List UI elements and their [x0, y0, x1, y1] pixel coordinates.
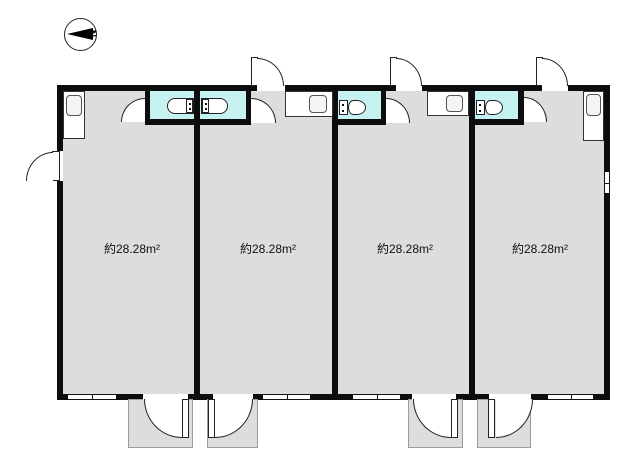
toilet-icon [485, 100, 503, 115]
kitchen-sink-icon [66, 95, 82, 116]
unit-area-label: 約28.28m² [360, 240, 450, 257]
bathroom-1-bottom-wall [145, 119, 200, 125]
bathroom-3-bottom-wall [332, 119, 386, 125]
unit-area-label: 約28.28m² [87, 240, 177, 257]
bathroom-2-bottom-wall [194, 119, 251, 125]
window [604, 172, 610, 193]
door-leaf [52, 151, 60, 181]
floor-plan: N [0, 0, 640, 469]
door-leaf [488, 399, 495, 438]
toilet-tank [476, 100, 485, 115]
kitchen-sink-icon [446, 95, 463, 112]
kitchen-sink-icon [586, 94, 601, 116]
bathroom-1-side-wall [145, 91, 150, 119]
window [353, 394, 400, 400]
door-swing-arc [396, 58, 422, 86]
window [548, 394, 593, 400]
bathroom-4-bottom-wall [469, 119, 524, 125]
window [263, 394, 310, 400]
north-label: N [86, 30, 97, 37]
door-leaf [451, 399, 458, 438]
unit-wall-1-2 [194, 85, 200, 400]
door-leaf [182, 399, 189, 438]
unit-area-label: 約28.28m² [223, 240, 313, 257]
door-leaf [208, 399, 215, 438]
door-swing-arc [542, 58, 568, 86]
door-swing-arc [257, 58, 284, 86]
toilet-icon [348, 100, 366, 115]
window [68, 394, 116, 400]
door-swing-arc [26, 152, 53, 181]
toilet-tank [339, 100, 348, 115]
kitchen-sink-icon [309, 95, 327, 113]
bathtub-panel [186, 99, 193, 113]
unit-wall-3-4 [469, 85, 475, 400]
unit-area-label: 約28.28m² [495, 240, 585, 257]
bathtub-panel [202, 99, 209, 113]
unit-wall-2-3 [332, 85, 338, 400]
